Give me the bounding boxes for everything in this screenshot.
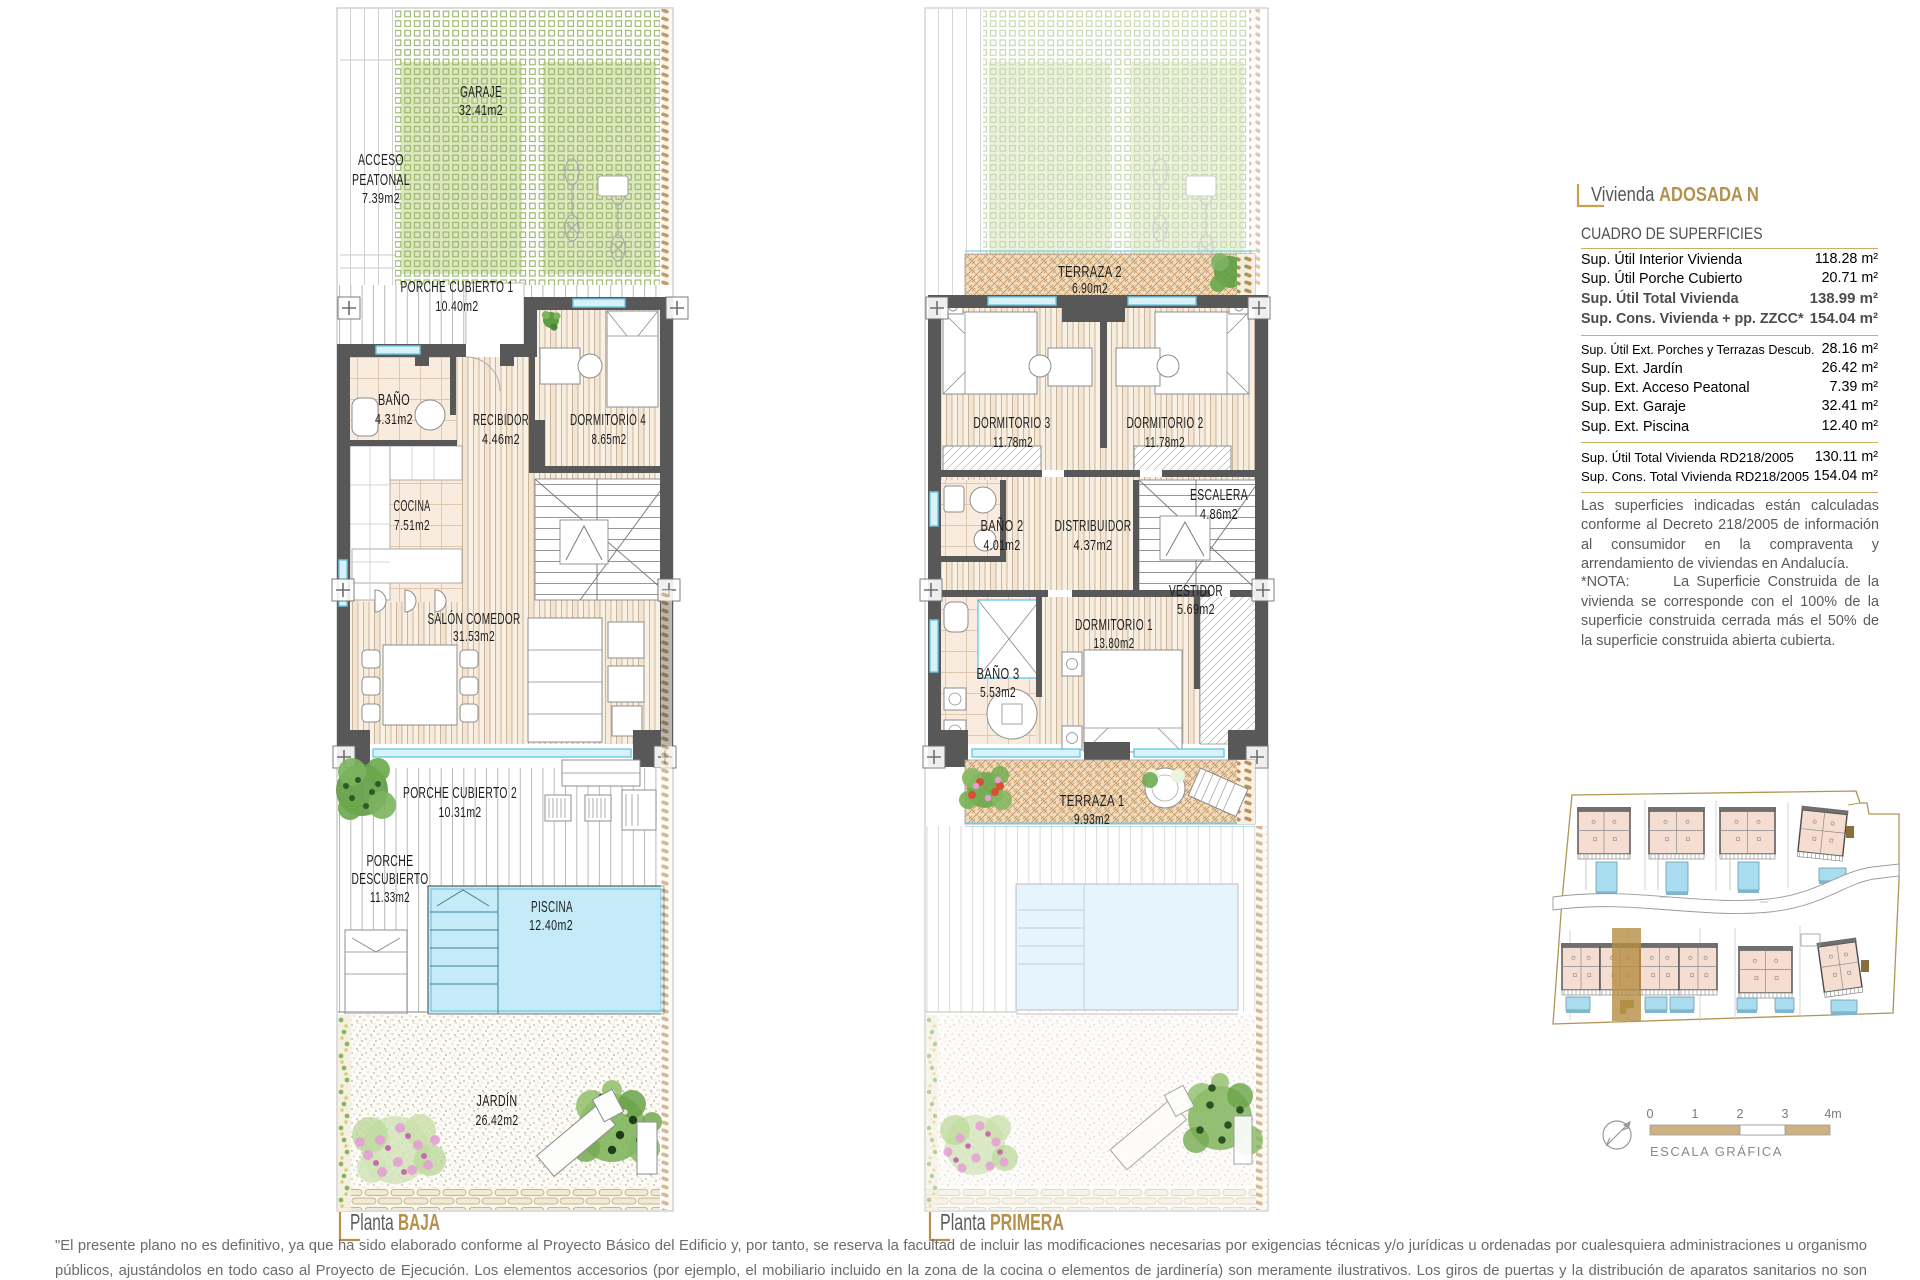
svg-text:9.93m2: 9.93m2 [1074,812,1110,828]
svg-text:DORMITORIO 3: DORMITORIO 3 [974,415,1051,432]
svg-text:DORMITORIO 4: DORMITORIO 4 [570,412,646,429]
svg-text:5.53m2: 5.53m2 [980,685,1016,701]
svg-text:BAÑO 3: BAÑO 3 [977,666,1020,683]
svg-text:RECIBIDOR: RECIBIDOR [473,412,529,429]
svg-text:4.37m2: 4.37m2 [1074,538,1113,554]
svg-text:4.46m2: 4.46m2 [482,432,520,448]
svg-text:DORMITORIO 1: DORMITORIO 1 [1075,617,1153,634]
svg-text:ACCESO: ACCESO [358,152,404,169]
svg-text:PORCHE CUBIERTO 1: PORCHE CUBIERTO 1 [401,279,514,296]
svg-text:DORMITORIO 2: DORMITORIO 2 [1127,415,1204,432]
svg-text:0: 0 [1647,1107,1654,1121]
svg-text:4.01m2: 4.01m2 [984,538,1021,554]
svg-text:4.86m2: 4.86m2 [1200,507,1238,523]
svg-text:PEATONAL: PEATONAL [352,172,410,189]
svg-text:11.78m2: 11.78m2 [993,435,1033,451]
svg-text:ESCALERA: ESCALERA [1190,487,1248,504]
svg-text:COCINA: COCINA [394,498,431,515]
svg-text:BAÑO 2: BAÑO 2 [981,518,1024,535]
svg-text:3: 3 [1782,1107,1789,1121]
svg-text:11.78m2: 11.78m2 [1145,435,1185,451]
svg-text:4m: 4m [1824,1107,1841,1121]
svg-text:7.51m2: 7.51m2 [394,518,430,534]
svg-text:32.41m2: 32.41m2 [459,103,503,119]
svg-text:TERRAZA 1: TERRAZA 1 [1060,793,1125,810]
svg-text:10.40m2: 10.40m2 [436,299,479,315]
svg-text:11.33m2: 11.33m2 [370,890,410,906]
svg-text:PORCHE: PORCHE [367,853,414,870]
svg-text:Planta PRIMERA: Planta PRIMERA [940,1209,1064,1235]
svg-text:13.80m2: 13.80m2 [1094,636,1135,652]
svg-text:7.39m2: 7.39m2 [362,191,400,207]
svg-text:8.65m2: 8.65m2 [592,432,627,448]
svg-text:31.53m2: 31.53m2 [453,629,495,645]
svg-text:1: 1 [1692,1107,1699,1121]
svg-text:ESCALA GRÁFICA: ESCALA GRÁFICA [1650,1144,1783,1159]
svg-text:Planta BAJA: Planta BAJA [350,1209,440,1235]
svg-text:VESTIDOR: VESTIDOR [1169,583,1223,600]
svg-text:DISTRIBUIDOR: DISTRIBUIDOR [1055,518,1132,535]
svg-text:PISCINA: PISCINA [531,899,573,916]
svg-text:DESCUBIERTO: DESCUBIERTO [352,871,429,888]
svg-text:10.31m2: 10.31m2 [439,805,482,821]
svg-text:TERRAZA 2: TERRAZA 2 [1058,264,1122,281]
svg-text:12.40m2: 12.40m2 [529,918,573,934]
svg-text:5.69m2: 5.69m2 [1177,602,1215,618]
svg-text:JARDÍN: JARDÍN [477,1093,518,1110]
svg-text:2: 2 [1737,1107,1744,1121]
svg-text:GARAJE: GARAJE [460,84,502,101]
svg-text:PORCHE CUBIERTO 2: PORCHE CUBIERTO 2 [403,785,517,802]
svg-text:4.31m2: 4.31m2 [375,412,413,428]
svg-text:26.42m2: 26.42m2 [476,1113,519,1129]
svg-text:6.90m2: 6.90m2 [1072,281,1108,297]
svg-text:SALÓN COMEDOR: SALÓN COMEDOR [428,611,521,628]
svg-text:BAÑO: BAÑO [378,392,410,409]
